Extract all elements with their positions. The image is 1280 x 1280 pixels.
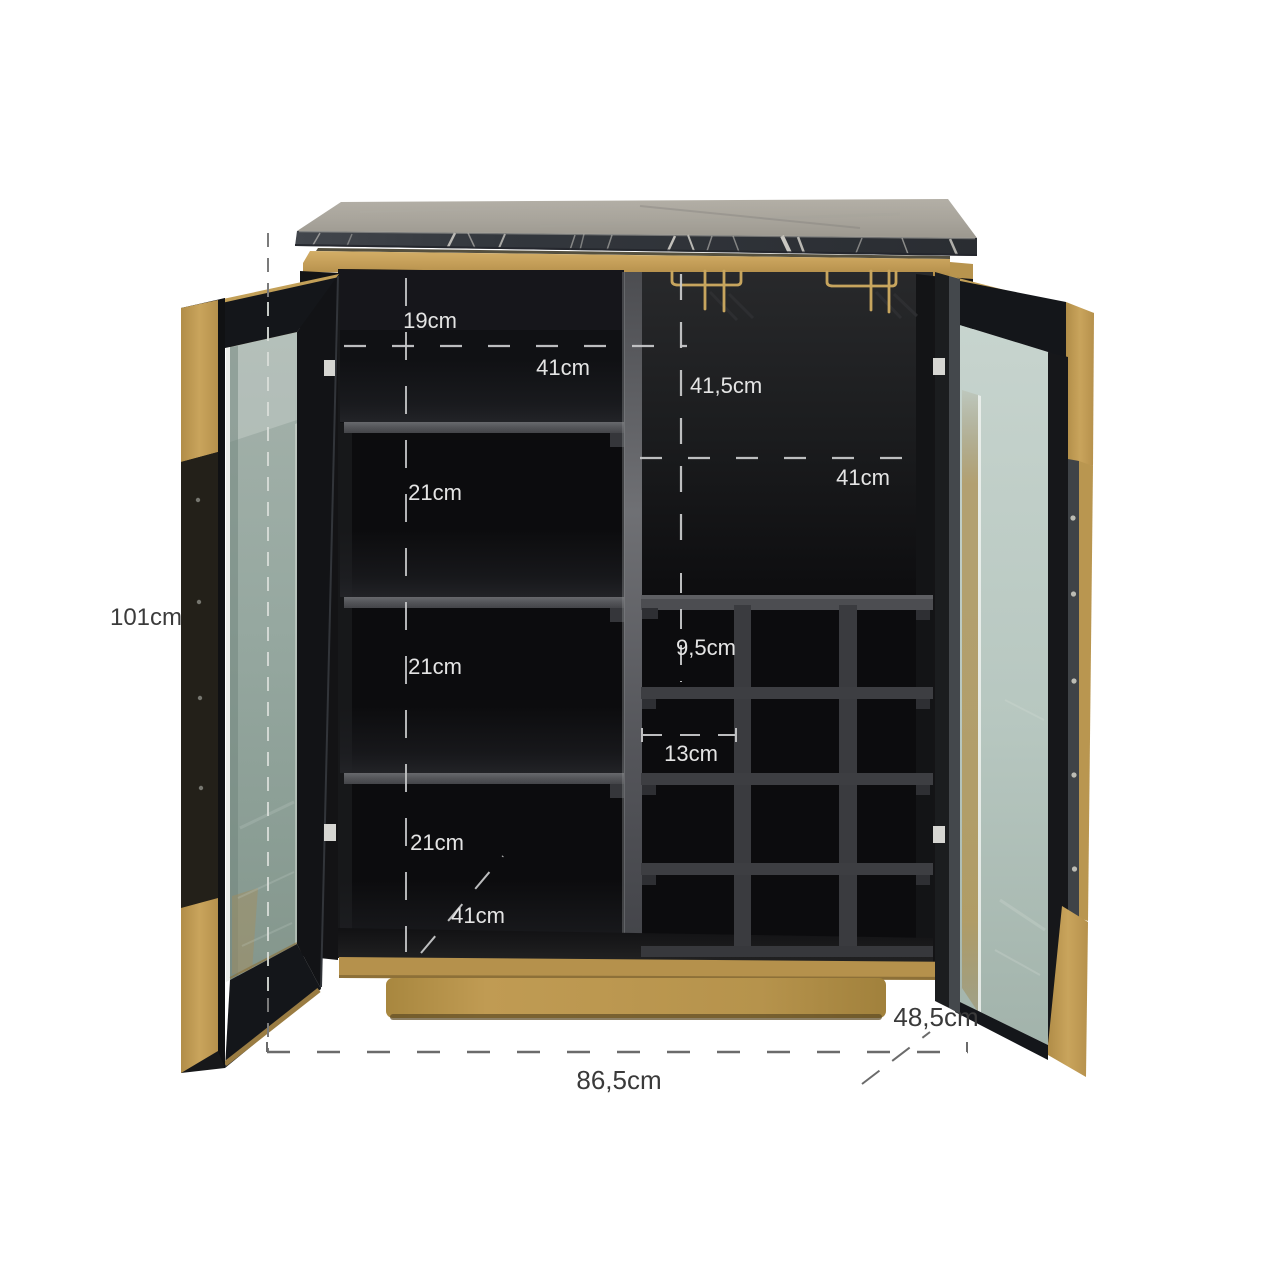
svg-text:41cm: 41cm xyxy=(451,903,505,928)
svg-text:9,5cm: 9,5cm xyxy=(676,635,736,660)
svg-text:48,5cm: 48,5cm xyxy=(893,1002,978,1032)
svg-text:21cm: 21cm xyxy=(408,480,462,505)
svg-text:41,5cm: 41,5cm xyxy=(690,373,762,398)
svg-text:19cm: 19cm xyxy=(403,308,457,333)
svg-text:41cm: 41cm xyxy=(836,465,890,490)
svg-text:101cm: 101cm xyxy=(110,604,182,631)
svg-text:86,5cm: 86,5cm xyxy=(576,1065,661,1095)
svg-text:41cm: 41cm xyxy=(536,355,590,380)
svg-text:13cm: 13cm xyxy=(664,741,718,766)
svg-text:21cm: 21cm xyxy=(410,830,464,855)
svg-text:21cm: 21cm xyxy=(408,654,462,679)
